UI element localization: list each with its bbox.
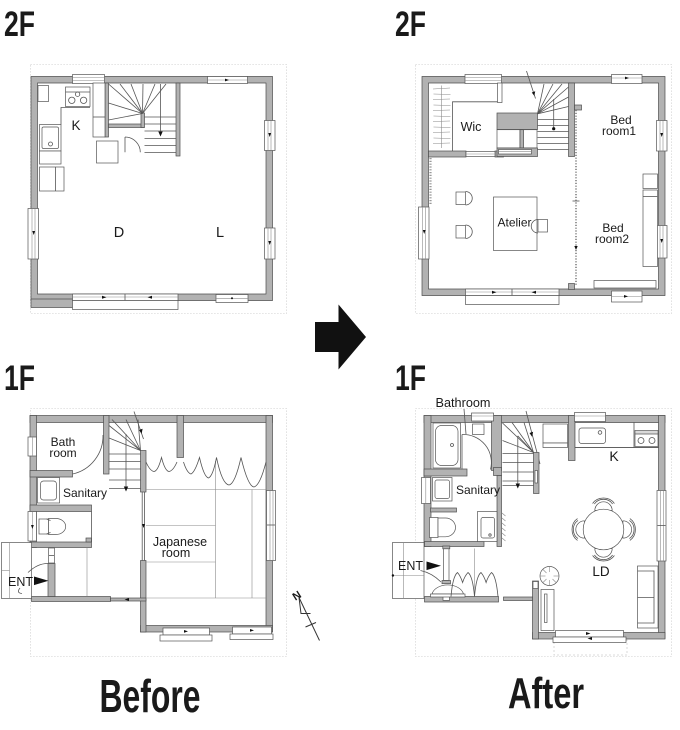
svg-text:room: room xyxy=(162,546,190,560)
svg-text:room: room xyxy=(49,446,76,460)
svg-text:1F: 1F xyxy=(395,359,426,398)
svg-text:After: After xyxy=(508,669,584,718)
svg-text:room1: room1 xyxy=(602,124,636,138)
svg-text:L: L xyxy=(216,225,224,241)
svg-text:Before: Before xyxy=(100,670,201,722)
svg-text:1F: 1F xyxy=(4,359,35,398)
svg-text:D: D xyxy=(114,225,124,241)
svg-text:Bathroom: Bathroom xyxy=(436,395,491,410)
svg-text:ENT: ENT xyxy=(398,559,423,573)
svg-text:ENT: ENT xyxy=(8,575,33,589)
svg-text:LD: LD xyxy=(592,564,610,579)
svg-text:Wic: Wic xyxy=(461,120,482,134)
svg-text:2F: 2F xyxy=(4,5,35,44)
svg-text:K: K xyxy=(71,118,80,133)
svg-text:room2: room2 xyxy=(595,232,629,246)
svg-text:Sanitary: Sanitary xyxy=(456,483,500,497)
svg-text:N: N xyxy=(291,589,304,603)
svg-text:Atelier: Atelier xyxy=(498,216,532,230)
svg-text:Sanitary: Sanitary xyxy=(63,486,107,500)
svg-text:2F: 2F xyxy=(395,5,426,44)
svg-text:K: K xyxy=(609,448,619,464)
